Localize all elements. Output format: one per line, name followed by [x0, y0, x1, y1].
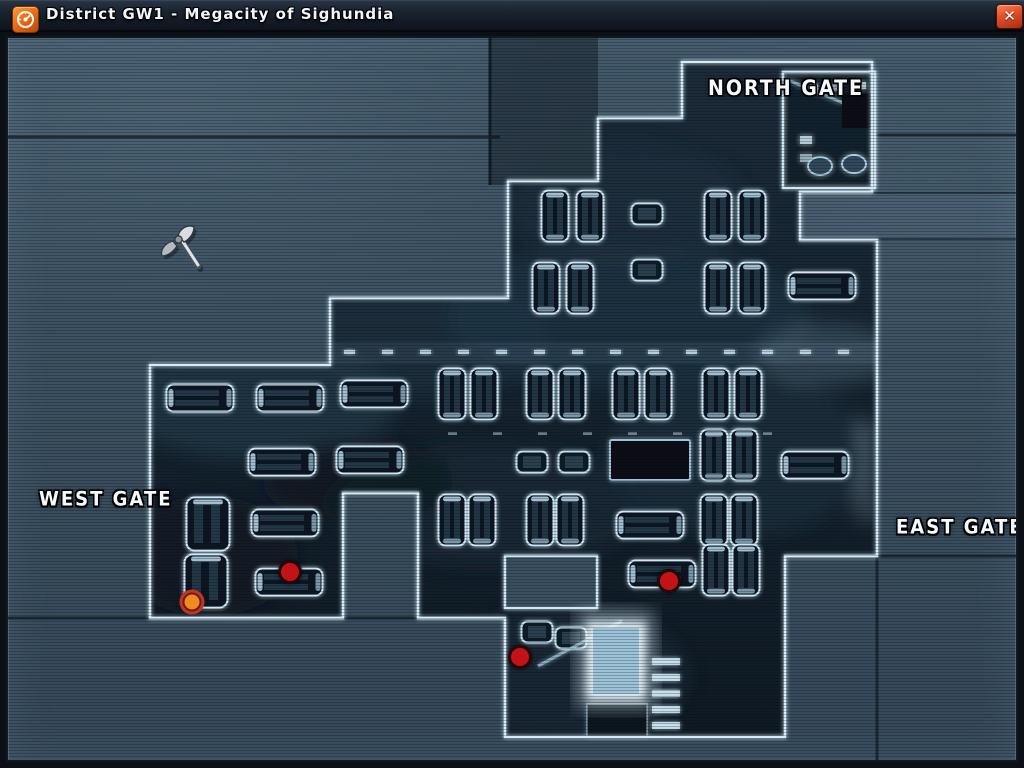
enemy-marker[interactable] — [508, 645, 532, 669]
district-map[interactable]: NORTH GATE WEST GATE EAST GATE SOUTH GAT… — [8, 36, 1016, 760]
selected-unit-marker[interactable] — [183, 593, 202, 612]
gate-label-east: EAST GATE — [896, 516, 1016, 539]
building-shadow — [490, 36, 598, 185]
game-window: NORTH GATE WEST GATE EAST GATE SOUTH GAT… — [0, 0, 1024, 768]
gate-label-north: NORTH GATE — [708, 76, 864, 101]
lit-building — [578, 612, 654, 708]
district-gauge-icon — [12, 6, 39, 33]
gate-label-west: WEST GATE — [39, 488, 173, 511]
window-title: District GW1 - Megacity of Sighundia — [46, 5, 394, 23]
enemy-marker[interactable] — [278, 560, 302, 584]
enemy-marker[interactable] — [657, 569, 681, 593]
title-bar: District GW1 - Megacity of Sighundia ✕ — [0, 0, 1024, 32]
close-button[interactable]: ✕ — [996, 4, 1023, 29]
